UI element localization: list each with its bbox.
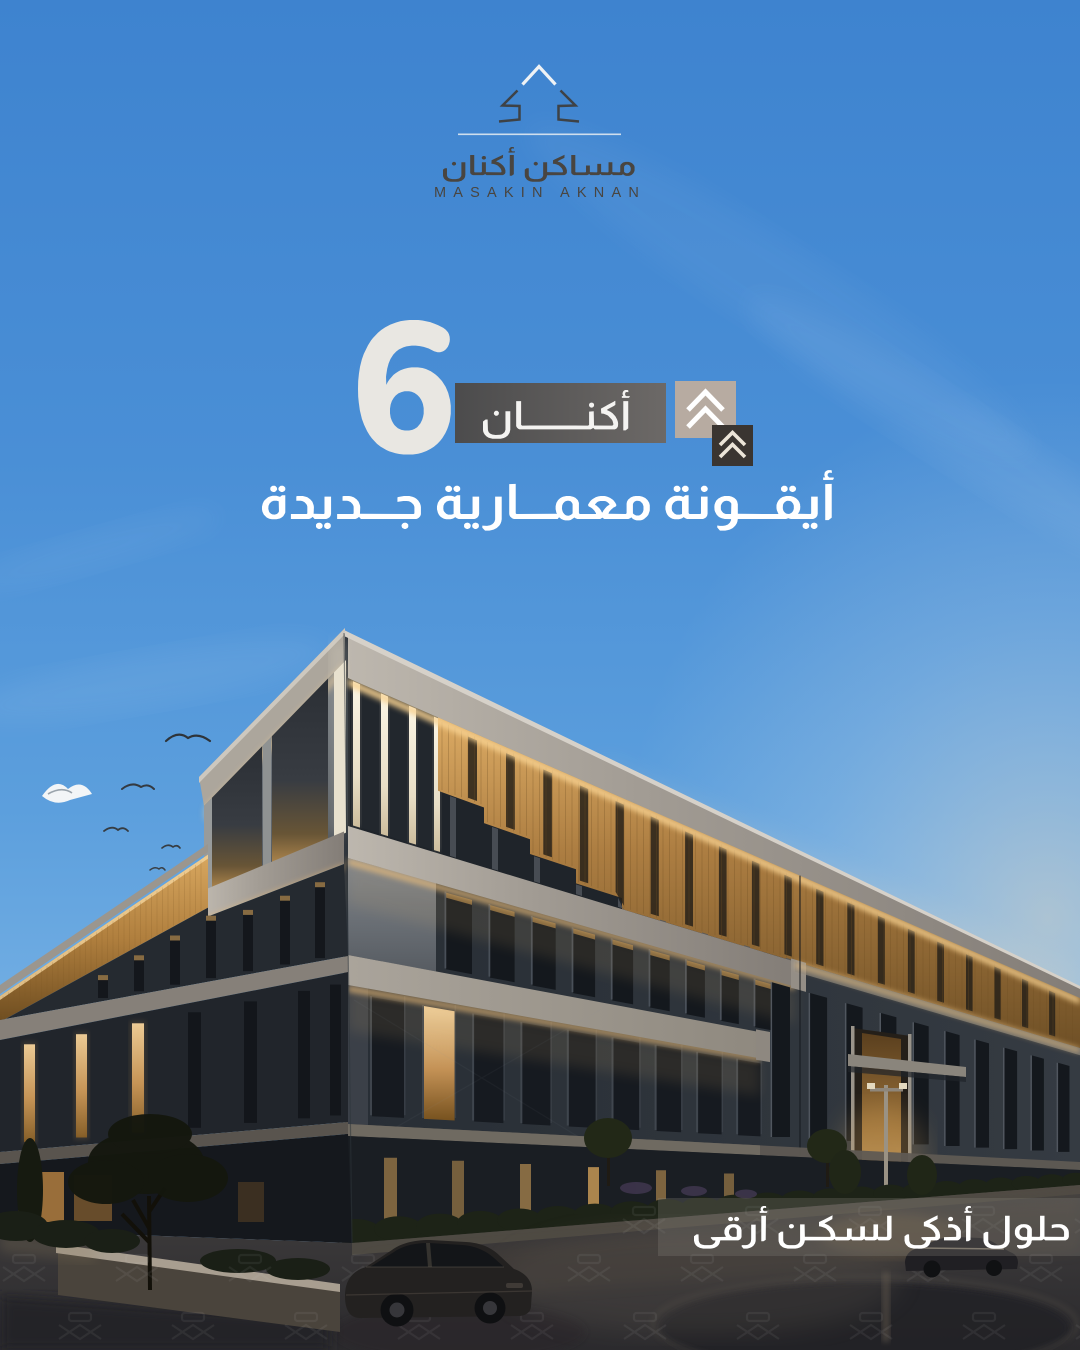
svg-text:MASAKIN AKNAN: MASAKIN AKNAN <box>434 185 646 201</box>
